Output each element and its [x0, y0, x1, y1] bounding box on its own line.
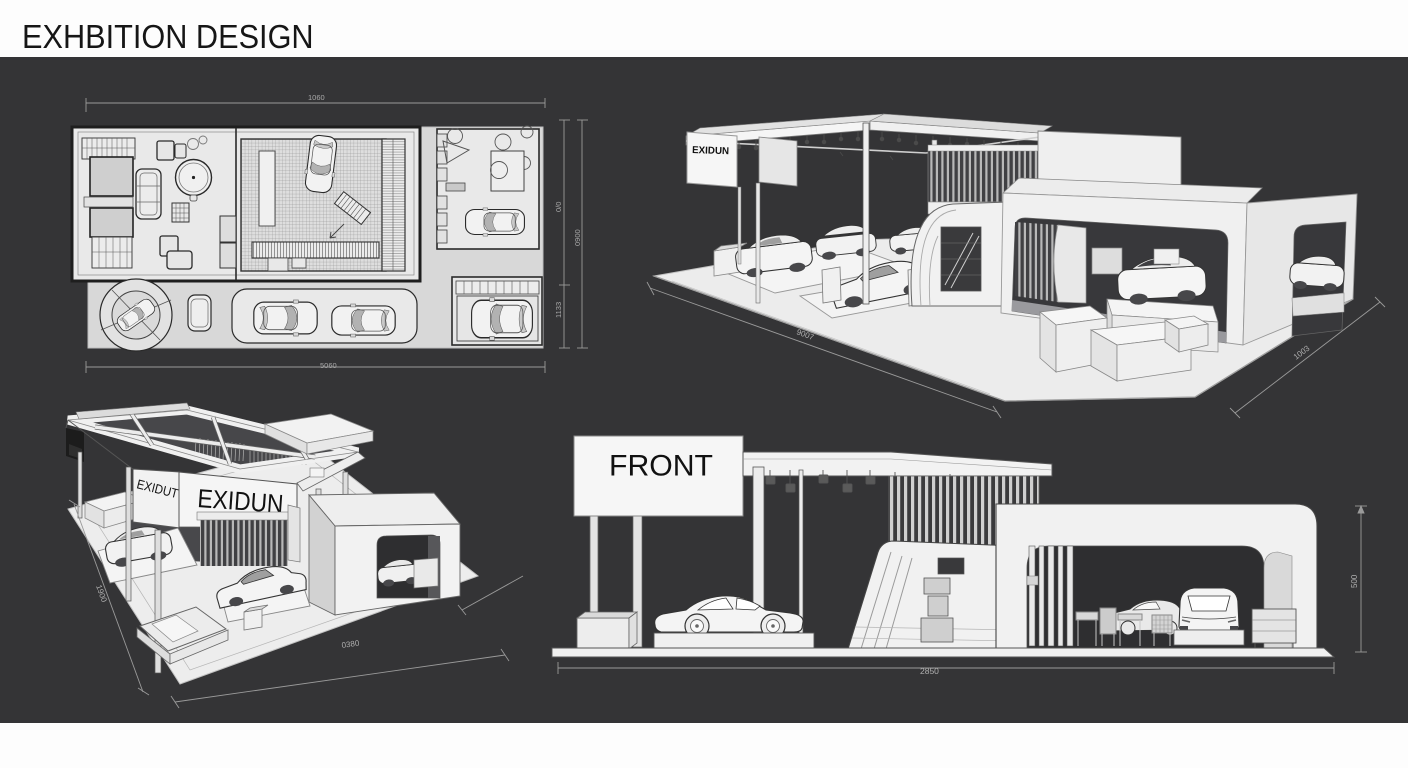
svg-text:500: 500 — [1350, 574, 1359, 588]
svg-text:1003: 1003 — [1292, 343, 1312, 361]
svg-text:EXIDUN: EXIDUN — [692, 145, 729, 157]
svg-text:1060: 1060 — [308, 93, 325, 102]
svg-text:1133: 1133 — [554, 302, 563, 318]
svg-text:1900: 1900 — [94, 584, 109, 604]
svg-text:0380: 0380 — [341, 639, 360, 650]
svg-text:2850: 2850 — [920, 666, 939, 676]
svg-text:5060: 5060 — [320, 361, 337, 370]
svg-text:0900: 0900 — [573, 229, 582, 246]
svg-text:FRONT: FRONT — [609, 450, 713, 483]
svg-text:0/0: 0/0 — [554, 202, 563, 212]
